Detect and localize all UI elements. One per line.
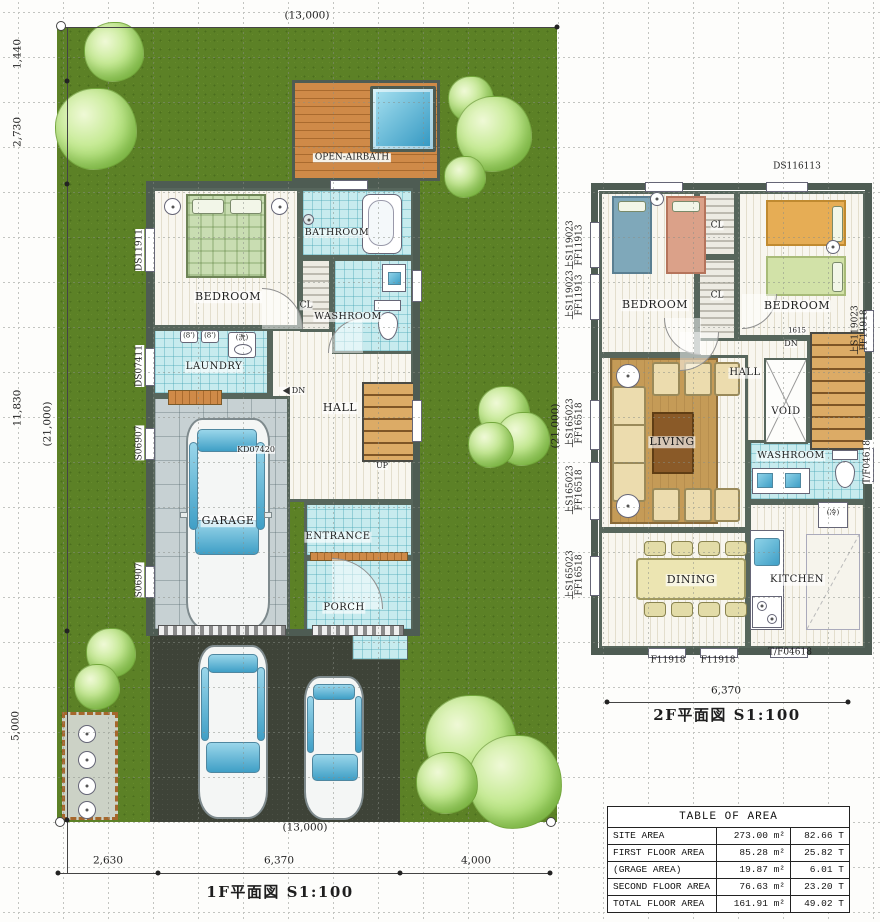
shower-head-icon [303,214,314,225]
pillow [832,206,843,242]
stove [752,596,782,628]
table-row: TOTAL FLOOR AREA 161.91 m² 49.02 T [608,895,849,912]
tree [444,156,486,198]
tree [468,735,562,829]
area-tsubo: 25.82 T [791,845,849,861]
burner [757,601,767,611]
dim-marker [605,700,610,705]
label-void: VOID [770,407,801,418]
window-1f [145,348,155,386]
terrace-pot [78,725,96,743]
nightstand [826,240,840,254]
tree [416,752,478,814]
area-m2: 85.28 m² [717,845,791,861]
window-code-pair: 上S119023 FF11918 [852,305,871,355]
tree [468,422,514,468]
dim-left-1440: 1,440 [12,39,23,69]
car-driveway-small [304,676,364,820]
label-bathroom-1f: BATHROOM [304,228,370,238]
window-code: T/F04618 [863,440,872,484]
dining-chair [671,602,693,617]
window-1f [145,228,155,272]
dim-marker [56,21,66,31]
label-cabinet: (8') [204,332,216,339]
dim-line-2f [607,702,848,703]
bed-2f [666,196,706,274]
table-row: (GRAGE AREA) 19.87 m² 6.01 T [608,861,849,878]
area-name: (GRAGE AREA) [608,862,717,878]
car-mirror [264,512,272,518]
car-side-window [355,696,362,753]
label-closet-1f: CL [300,301,313,310]
window-code: F11918 [701,656,736,665]
dim-bottom-2630: 2,630 [93,855,123,866]
terrace-pot [78,751,96,769]
garden-terrace [62,712,118,820]
label-kitchen: KITCHEN [769,575,825,586]
table-row: FIRST FLOOR AREA 85.28 m² 25.82 T [608,844,849,861]
sofa-cushion [652,362,680,396]
label-living: LIVING [648,436,695,448]
window-1f [412,270,422,302]
dining-chair [698,541,720,556]
window-1f [412,400,422,442]
window-code-pair: 上S165023 FF16518 [567,465,586,515]
code-line: FF16518 [576,398,585,448]
armchair [616,494,640,518]
pillow [832,262,843,292]
area-m2: 273.00 m² [717,828,791,844]
window-code: S06907 [135,426,144,461]
dim-left-2730: 2,730 [12,117,23,147]
dim-marker [65,182,70,187]
dim-left-5000: 5,000 [10,711,21,741]
label-bedroom-2f-left: BEDROOM [621,299,689,311]
label-deck: OPEN-AIRBATH [313,153,391,162]
window-code-pair: 上S119023 FF11913 [567,270,586,320]
dim-2f-6370: 6,370 [711,685,741,696]
window-code: DS116113 [773,162,821,171]
void-opening [764,358,808,444]
area-name: SITE AREA [608,828,717,844]
label-hall-2f: HALL [728,368,761,379]
window-1f [330,180,368,190]
car-side-window [189,442,198,530]
window-code: T/F04618 [768,648,812,657]
code-line: FF16518 [576,465,585,515]
pillow [618,201,646,212]
dim-marker [156,871,161,876]
window-2f [766,182,808,192]
area-tsubo: 49.02 T [791,896,849,912]
code-line: FF11913 [576,220,585,270]
pillow [230,199,262,214]
bed-2f [766,256,846,296]
dim-marker [846,700,851,705]
caption-1f: 1F平面図 S1:100 [206,885,353,901]
window-2f [590,556,600,596]
label-fridge: (冷) [827,509,839,516]
area-m2: 76.63 m² [717,879,791,895]
window-code: F11918 [651,656,686,665]
window-1f [145,566,155,598]
dim-bottom-13000: (13,000) [283,822,328,833]
dim-marker [65,629,70,634]
label-closet-2f: CL [711,291,724,300]
staircase-1f [362,382,416,462]
sofa [612,386,646,502]
label-cabinet: (8') [183,332,195,339]
area-tsubo: 82.66 T [791,828,849,844]
label-hall-1f: HALL [322,402,358,414]
dining-chair [725,602,747,617]
label-garage-1f: GARAGE [201,515,256,527]
label-dining: DINING [666,574,717,586]
car-rear-glass [313,684,355,700]
area-name: FIRST FLOOR AREA [608,845,717,861]
walkway-tiles [352,632,408,660]
terrace-pot [78,777,96,795]
sink-basin [388,272,401,285]
label-car-code: KD07420 [237,446,275,454]
window-2f [590,222,600,268]
window-code: DS11911 [135,229,144,271]
dim-bottom-6370: 6,370 [264,855,294,866]
table-row: SECOND FLOOR AREA 76.63 m² 23.20 T [608,878,849,895]
dim-line-bottom [58,873,550,874]
label-dn-1f: DN [279,387,305,395]
car-rear-glass [208,654,258,673]
area-m2: 161.91 m² [717,896,791,912]
dim-marker [55,817,65,827]
dim-2f-21000: (21,000) [550,404,561,449]
car-driveway-large [198,645,268,819]
area-table: TABLE OF AREA SITE AREA 273.00 m² 82.66 … [607,806,850,913]
label-entrance-1f: ENTRANCE [304,532,371,543]
code-line: FF11913 [576,270,585,320]
code-line: FF16518 [576,550,585,600]
label-up: UP [376,462,388,470]
bed-2f [612,196,652,274]
window-code-pair: 上S165023 FF16518 [567,550,586,600]
outdoor-bathtub [370,86,436,152]
pillow [192,199,224,214]
vanity-sink-1f [382,264,406,292]
label-laundry-1f: LAUNDRY [185,362,243,373]
bed-1f [186,194,266,278]
sofa-cushion [714,488,740,522]
dim-top-13000: (13,000) [285,10,330,21]
car-side-window [257,667,265,741]
dim-marker [65,79,70,84]
area-tsubo: 6.01 T [791,862,849,878]
terrace-pot [78,801,96,819]
window-code: DS07411 [135,345,144,387]
toilet-tank-2f [832,450,858,460]
washroom-sink [757,473,773,488]
label-closet-2f: CL [711,221,724,230]
dining-chair [725,541,747,556]
label-dn-2f: DN [784,340,797,348]
window-code-pair: 上S119023 FF11913 [567,220,586,270]
window-1f [145,428,155,460]
label-washroom-1f: WASHROOM [313,312,382,322]
dim-marker [398,871,403,876]
window-2f [590,462,600,520]
dim-left-21000: (21,000) [42,402,53,447]
window-code: S06907 [135,563,144,598]
nightstand [164,198,181,215]
dim-marker [546,817,556,827]
nightstand [271,198,288,215]
dim-line-top [61,27,557,28]
area-name: SECOND FLOOR AREA [608,879,717,895]
window-2f [645,182,683,192]
dim-marker [56,871,61,876]
label-washroom-2f: WASHROOM [756,451,825,461]
nightstand [650,192,664,206]
tree [84,22,144,82]
garage-door [158,625,286,636]
area-m2: 19.87 m² [717,862,791,878]
washroom-sink [785,473,801,488]
car-windshield [206,742,260,773]
dim-line-left [67,27,68,873]
code-line: FF11918 [861,305,870,355]
car-side-window [201,667,209,741]
void-x-mark [766,360,806,442]
dim-marker [65,818,70,823]
caption-2f: 2F平面図 S1:100 [653,708,800,724]
label-bedroom-2f-right: BEDROOM [763,300,831,312]
table-row: SITE AREA 273.00 m² 82.66 T [608,827,849,844]
car-side-window [307,696,314,753]
armchair [616,364,640,388]
dim-bottom-4000: 4,000 [461,855,491,866]
burner [767,614,777,624]
label-porch-1f: PORCH [322,603,365,614]
sofa-cushion [652,488,680,522]
area-table-title: TABLE OF AREA [608,807,849,827]
dim-marker [548,871,553,876]
porch-edge [312,625,404,636]
dining-chair [644,541,666,556]
label-stair-num: 1615 [788,327,806,334]
label-bedroom-1f: BEDROOM [194,291,262,303]
kitchen-sink [754,538,780,566]
dining-chair [671,541,693,556]
sofa-cushion [684,488,712,522]
area-tsubo: 23.20 T [791,879,849,895]
pillow [672,201,700,212]
car-mirror [180,512,188,518]
washer-drum [234,344,252,355]
floor-plan-sheet: (13,000) 1,440 2,730 11,830 (21,000) 5,0… [0,0,880,922]
car-windshield [312,754,358,781]
dim-left-11830: 11,830 [12,390,23,427]
label-washer: (洗) [236,334,248,341]
bathtub-inner [368,200,394,246]
toilet-tank-1f [374,300,401,311]
dining-chair [644,602,666,617]
garage-interior-step [168,390,222,405]
entrance-step [310,552,408,561]
window-2f [590,274,600,320]
window-code-pair: 上S165023 FF16518 [567,398,586,448]
tree [74,664,120,710]
window-2f [590,400,600,450]
area-name: TOTAL FLOOR AREA [608,896,717,912]
dim-marker [555,25,560,30]
dining-chair [698,602,720,617]
bathtub [362,194,402,254]
